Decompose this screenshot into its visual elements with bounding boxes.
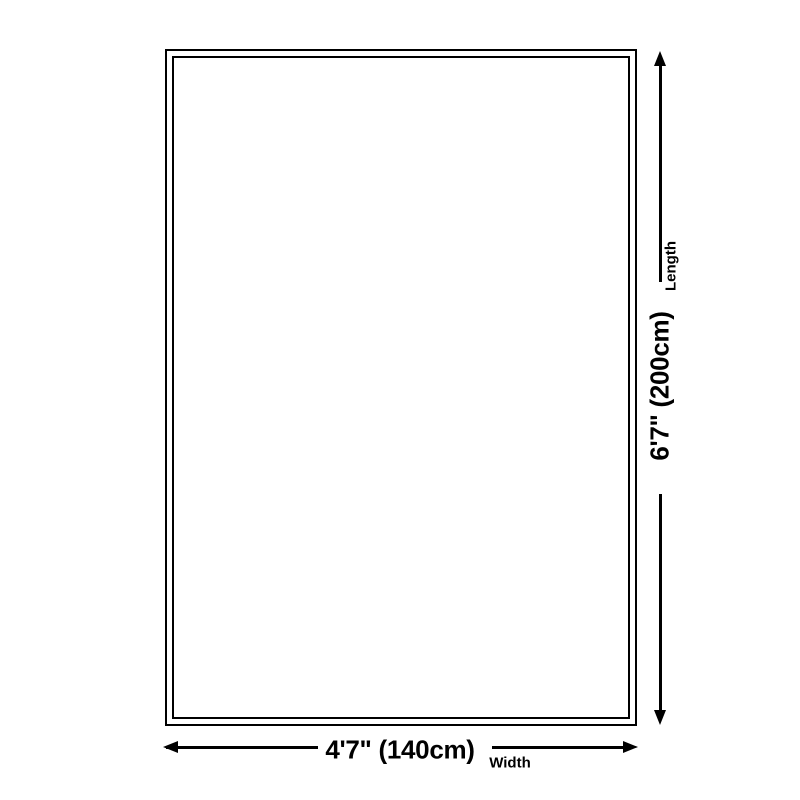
width-value: 4'7" (140cm) <box>325 735 474 766</box>
length-line-top-segment <box>659 58 662 282</box>
arrow-right-icon <box>623 741 638 753</box>
width-line-left-segment <box>166 746 318 749</box>
length-label: Length <box>663 241 680 291</box>
product-outline-inner <box>172 56 630 719</box>
size-diagram: Length 6'7" (200cm) 4'7" (140cm) Width <box>0 0 800 800</box>
arrow-down-icon <box>654 710 666 725</box>
width-label: Width <box>489 755 531 772</box>
length-line-bottom-segment <box>659 494 662 716</box>
length-value: 6'7" (200cm) <box>645 311 676 460</box>
width-line-right-segment <box>492 746 632 749</box>
